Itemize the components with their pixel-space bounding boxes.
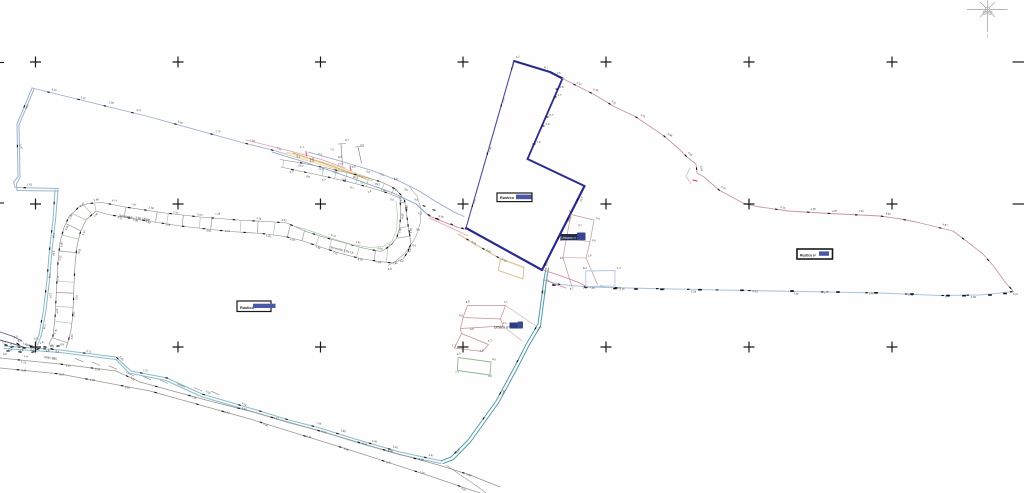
svg-text:2.6: 2.6 bbox=[557, 71, 561, 75]
svg-text:5.43: 5.43 bbox=[95, 368, 101, 372]
svg-text:4.0: 4.0 bbox=[26, 343, 30, 347]
svg-text:8.4: 8.4 bbox=[583, 266, 587, 270]
svg-text:1.81: 1.81 bbox=[27, 182, 33, 186]
svg-text:2.93: 2.93 bbox=[298, 164, 304, 168]
svg-text:5.33: 5.33 bbox=[752, 289, 758, 294]
svg-text:8.99: 8.99 bbox=[388, 449, 394, 453]
svg-text:2.8: 2.8 bbox=[488, 374, 492, 378]
svg-text:2.24: 2.24 bbox=[49, 293, 53, 299]
svg-text:7.84: 7.84 bbox=[858, 209, 864, 213]
svg-text:7.7: 7.7 bbox=[338, 162, 342, 166]
svg-text:2.19: 2.19 bbox=[56, 275, 60, 281]
svg-text:3.08: 3.08 bbox=[165, 222, 171, 226]
svg-text:2.9: 2.9 bbox=[617, 286, 621, 290]
svg-text:2.75: 2.75 bbox=[215, 129, 221, 133]
svg-text:3.2: 3.2 bbox=[400, 259, 404, 263]
svg-text:7.39: 7.39 bbox=[191, 395, 197, 399]
svg-text:7.8: 7.8 bbox=[583, 286, 587, 290]
svg-text:1.42: 1.42 bbox=[225, 228, 231, 233]
svg-text:8.26: 8.26 bbox=[357, 257, 363, 262]
svg-text:Urbano n: Urbano n bbox=[562, 236, 576, 240]
svg-text:7.97: 7.97 bbox=[131, 202, 137, 207]
svg-text:4.5: 4.5 bbox=[569, 209, 573, 213]
svg-text:3.7: 3.7 bbox=[558, 93, 562, 97]
svg-text:7.64: 7.64 bbox=[376, 260, 382, 264]
svg-text:1.7: 1.7 bbox=[617, 266, 621, 270]
svg-text:2.22: 2.22 bbox=[405, 205, 409, 211]
svg-text:3.67: 3.67 bbox=[66, 364, 72, 368]
svg-text:2.22: 2.22 bbox=[72, 311, 76, 317]
svg-text:8.63: 8.63 bbox=[59, 372, 65, 377]
svg-text:4.8: 4.8 bbox=[560, 85, 564, 89]
svg-text:Rústico: Rústico bbox=[240, 306, 255, 310]
svg-text:2.59: 2.59 bbox=[52, 251, 56, 257]
svg-text:8.52: 8.52 bbox=[282, 218, 288, 222]
svg-text:2.58: 2.58 bbox=[511, 61, 516, 67]
svg-text:Rústico: Rústico bbox=[500, 196, 515, 200]
svg-text:6.39: 6.39 bbox=[691, 289, 697, 293]
svg-text:7.96: 7.96 bbox=[316, 421, 322, 425]
svg-text:1.45: 1.45 bbox=[868, 291, 874, 296]
svg-text:4.92: 4.92 bbox=[409, 227, 413, 233]
svg-text:4.55: 4.55 bbox=[419, 457, 425, 462]
svg-text:4.9: 4.9 bbox=[3, 352, 7, 356]
svg-text:4.5: 4.5 bbox=[360, 143, 365, 147]
svg-text:3.0: 3.0 bbox=[546, 122, 550, 126]
svg-text:Urbano nº: Urbano nº bbox=[494, 326, 510, 330]
svg-text:8.68: 8.68 bbox=[401, 213, 405, 219]
svg-text:7.9: 7.9 bbox=[537, 140, 541, 144]
svg-text:4.19: 4.19 bbox=[21, 368, 27, 372]
svg-text:4.68: 4.68 bbox=[971, 295, 977, 299]
svg-text:7.67: 7.67 bbox=[542, 289, 546, 295]
svg-text:3.69: 3.69 bbox=[70, 334, 74, 340]
svg-text:7.29: 7.29 bbox=[215, 211, 221, 216]
svg-text:3.7: 3.7 bbox=[345, 138, 349, 142]
svg-text:5.87: 5.87 bbox=[386, 460, 392, 464]
svg-text:8.61: 8.61 bbox=[206, 228, 212, 232]
svg-text:8.7: 8.7 bbox=[550, 113, 554, 117]
svg-text:7.31: 7.31 bbox=[143, 368, 149, 372]
svg-text:Rústico nº: Rústico nº bbox=[800, 253, 817, 257]
svg-text:4.46: 4.46 bbox=[90, 378, 96, 382]
svg-text:3.86: 3.86 bbox=[59, 241, 63, 247]
